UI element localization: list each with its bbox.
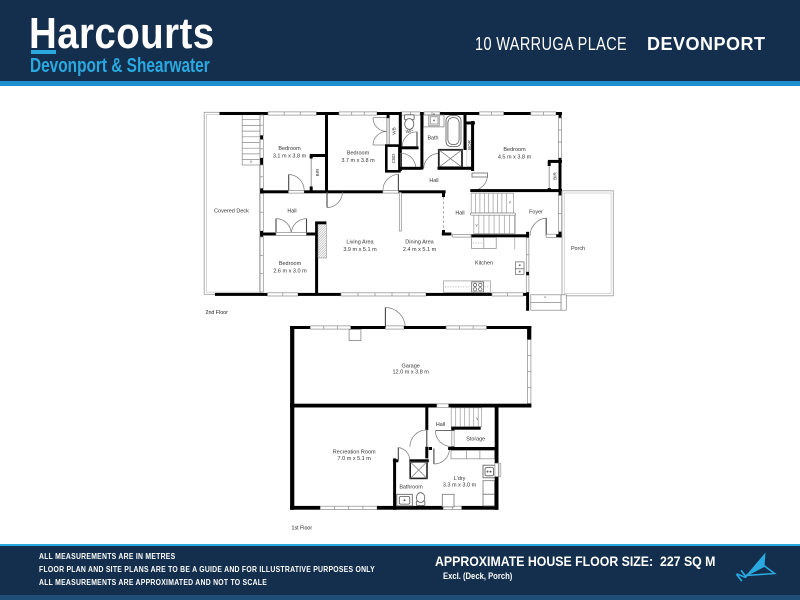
svg-text:Hall: Hall bbox=[436, 422, 445, 428]
svg-text:Bedroom: Bedroom bbox=[279, 261, 302, 267]
svg-text:Hall: Hall bbox=[429, 178, 438, 184]
svg-text:4.5 m x 3.8 m: 4.5 m x 3.8 m bbox=[498, 155, 532, 161]
svg-text:7.0 m x 5.1 m: 7.0 m x 5.1 m bbox=[338, 456, 372, 462]
svg-text:N: N bbox=[733, 567, 750, 585]
svg-text:2.6 m x 3.0 m: 2.6 m x 3.0 m bbox=[273, 269, 307, 275]
svg-text:Bedroom: Bedroom bbox=[503, 147, 526, 153]
svg-text:Living Area: Living Area bbox=[346, 240, 374, 246]
svg-text:3.3 m x 3.0 m: 3.3 m x 3.0 m bbox=[443, 483, 477, 489]
svg-text:Dining Area: Dining Area bbox=[405, 240, 434, 246]
svg-text:12.0 m x 3.8 m: 12.0 m x 3.8 m bbox=[393, 370, 430, 376]
svg-text:BIR: BIR bbox=[315, 168, 320, 176]
svg-text:3.1 m x 3.8 m: 3.1 m x 3.8 m bbox=[273, 154, 307, 160]
svg-text:Porch: Porch bbox=[571, 246, 585, 252]
svg-text:Hall: Hall bbox=[455, 211, 464, 217]
svg-text:BIR: BIR bbox=[553, 171, 558, 179]
svg-text:2.4 m x 5.1 m: 2.4 m x 5.1 m bbox=[403, 247, 437, 253]
svg-text:Hall: Hall bbox=[287, 209, 296, 215]
svg-text:2nd Floor: 2nd Floor bbox=[206, 310, 229, 316]
svg-text:Bathroom: Bathroom bbox=[399, 485, 423, 491]
svg-text:CBD: CBD bbox=[391, 153, 396, 163]
svg-text:3.7 m x 3.8 m: 3.7 m x 3.8 m bbox=[341, 158, 375, 164]
svg-text:Bedroom: Bedroom bbox=[347, 151, 370, 157]
svg-text:Foyer: Foyer bbox=[529, 210, 543, 216]
svg-text:Bath: Bath bbox=[427, 136, 438, 142]
svg-text:Storage: Storage bbox=[466, 437, 485, 443]
svg-text:Bedroom: Bedroom bbox=[278, 146, 301, 152]
svg-text:WB: WB bbox=[392, 127, 397, 134]
svg-text:L'dry: L'dry bbox=[454, 476, 466, 482]
svg-text:Covered Deck: Covered Deck bbox=[214, 209, 249, 215]
svg-text:1st Floor: 1st Floor bbox=[292, 526, 313, 532]
svg-text:Kitchen: Kitchen bbox=[475, 261, 493, 267]
svg-text:3.9 m x 5.1 m: 3.9 m x 5.1 m bbox=[343, 247, 377, 253]
svg-text:Recreation Room: Recreation Room bbox=[333, 450, 376, 456]
